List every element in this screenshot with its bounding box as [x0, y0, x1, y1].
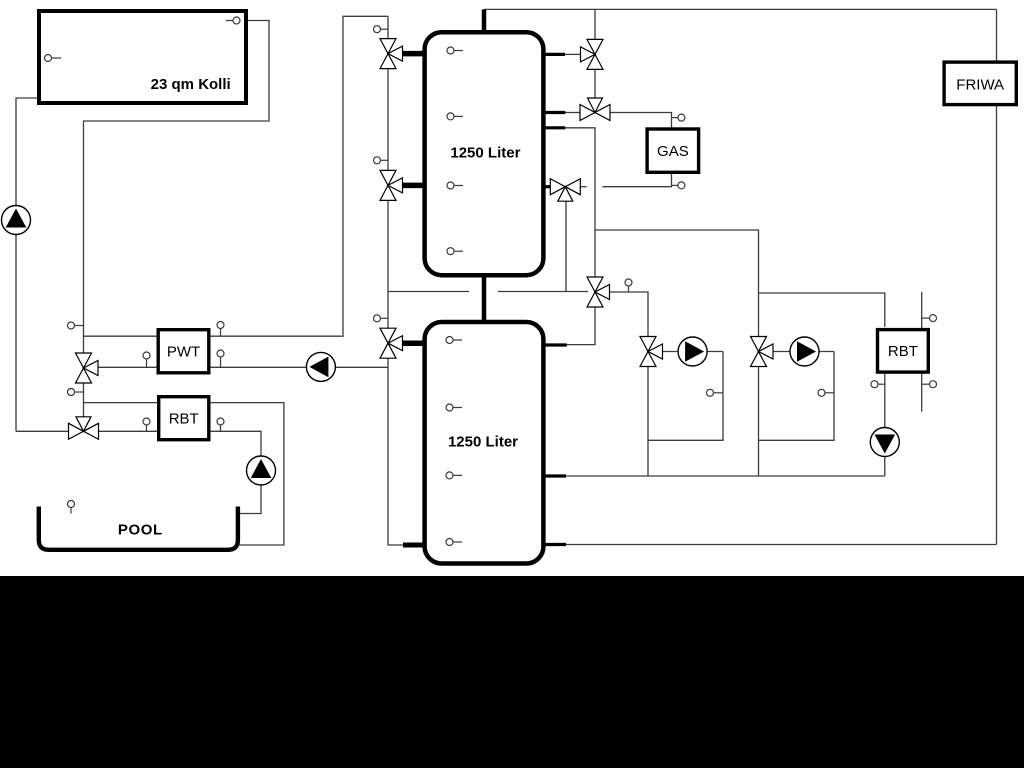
svg-text:RBT: RBT	[888, 343, 918, 360]
svg-text:POOL: POOL	[118, 522, 163, 539]
svg-text:FRIWA: FRIWA	[956, 76, 1004, 93]
svg-text:1250 Liter: 1250 Liter	[450, 144, 520, 161]
svg-text:23 qm Kolli: 23 qm Kolli	[151, 76, 231, 93]
svg-text:GAS: GAS	[657, 143, 689, 160]
svg-text:RBT: RBT	[169, 411, 199, 428]
svg-text:1250 Liter: 1250 Liter	[448, 433, 518, 450]
svg-text:PWT: PWT	[167, 344, 200, 361]
